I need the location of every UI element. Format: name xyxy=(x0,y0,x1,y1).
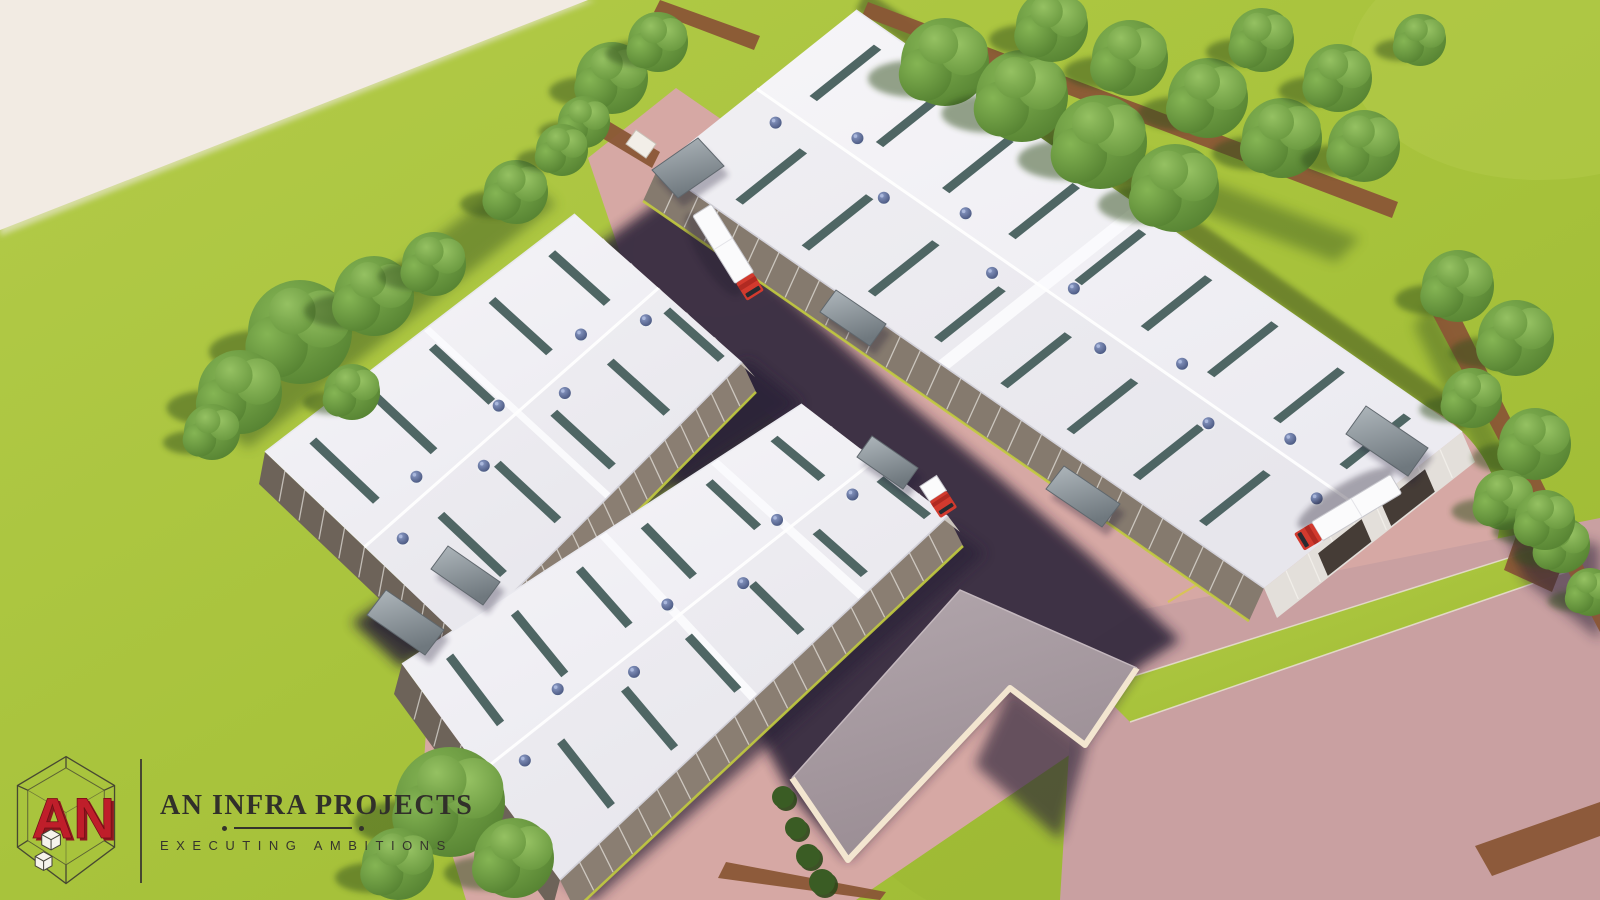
shrub xyxy=(785,817,807,839)
render-viewport: AN AN AN INFRA PROJECTS EXECUTING AMBITI… xyxy=(0,0,1600,900)
roof-ventilator xyxy=(986,267,998,279)
shrub xyxy=(796,844,820,868)
rule-dot-right xyxy=(359,826,364,831)
brand-tagline: EXECUTING AMBITIONS xyxy=(160,838,473,853)
roof-ventilator xyxy=(846,488,858,500)
roof-ventilator xyxy=(770,117,782,129)
brand-divider-line xyxy=(140,759,142,883)
roof-ventilator xyxy=(519,755,531,767)
roof-ventilator xyxy=(878,192,890,204)
roof-ventilator xyxy=(771,514,783,526)
roof-ventilator xyxy=(493,400,505,412)
roof-ventilator xyxy=(552,683,564,695)
roof-ventilator xyxy=(397,532,409,544)
brand-lockup: AN AN AN INFRA PROJECTS EXECUTING AMBITI… xyxy=(10,748,473,894)
roof-ventilator xyxy=(737,577,749,589)
brand-text-block: AN INFRA PROJECTS EXECUTING AMBITIONS xyxy=(160,790,473,853)
roof-ventilator xyxy=(851,132,863,144)
rule-line xyxy=(234,827,352,829)
brand-monogram-icon: AN AN xyxy=(10,748,122,894)
roof-ventilator xyxy=(1068,283,1080,295)
roof-ventilator xyxy=(410,471,422,483)
shrub xyxy=(809,869,835,895)
roof-ventilator xyxy=(640,314,652,326)
roof-ventilator xyxy=(1202,417,1214,429)
roof-ventilator xyxy=(628,666,640,678)
roof-ventilator xyxy=(1094,342,1106,354)
roof-ventilator xyxy=(1284,433,1296,445)
roof-ventilator xyxy=(1176,358,1188,370)
shrub xyxy=(772,786,794,808)
roof-ventilator xyxy=(960,207,972,219)
roof-ventilator xyxy=(661,599,673,611)
brand-title: AN INFRA PROJECTS xyxy=(160,790,473,822)
brand-rule xyxy=(222,826,473,831)
roof-ventilator xyxy=(478,460,490,472)
roof-ventilator xyxy=(575,329,587,341)
roof-ventilator xyxy=(559,387,571,399)
rule-dot-left xyxy=(222,826,227,831)
